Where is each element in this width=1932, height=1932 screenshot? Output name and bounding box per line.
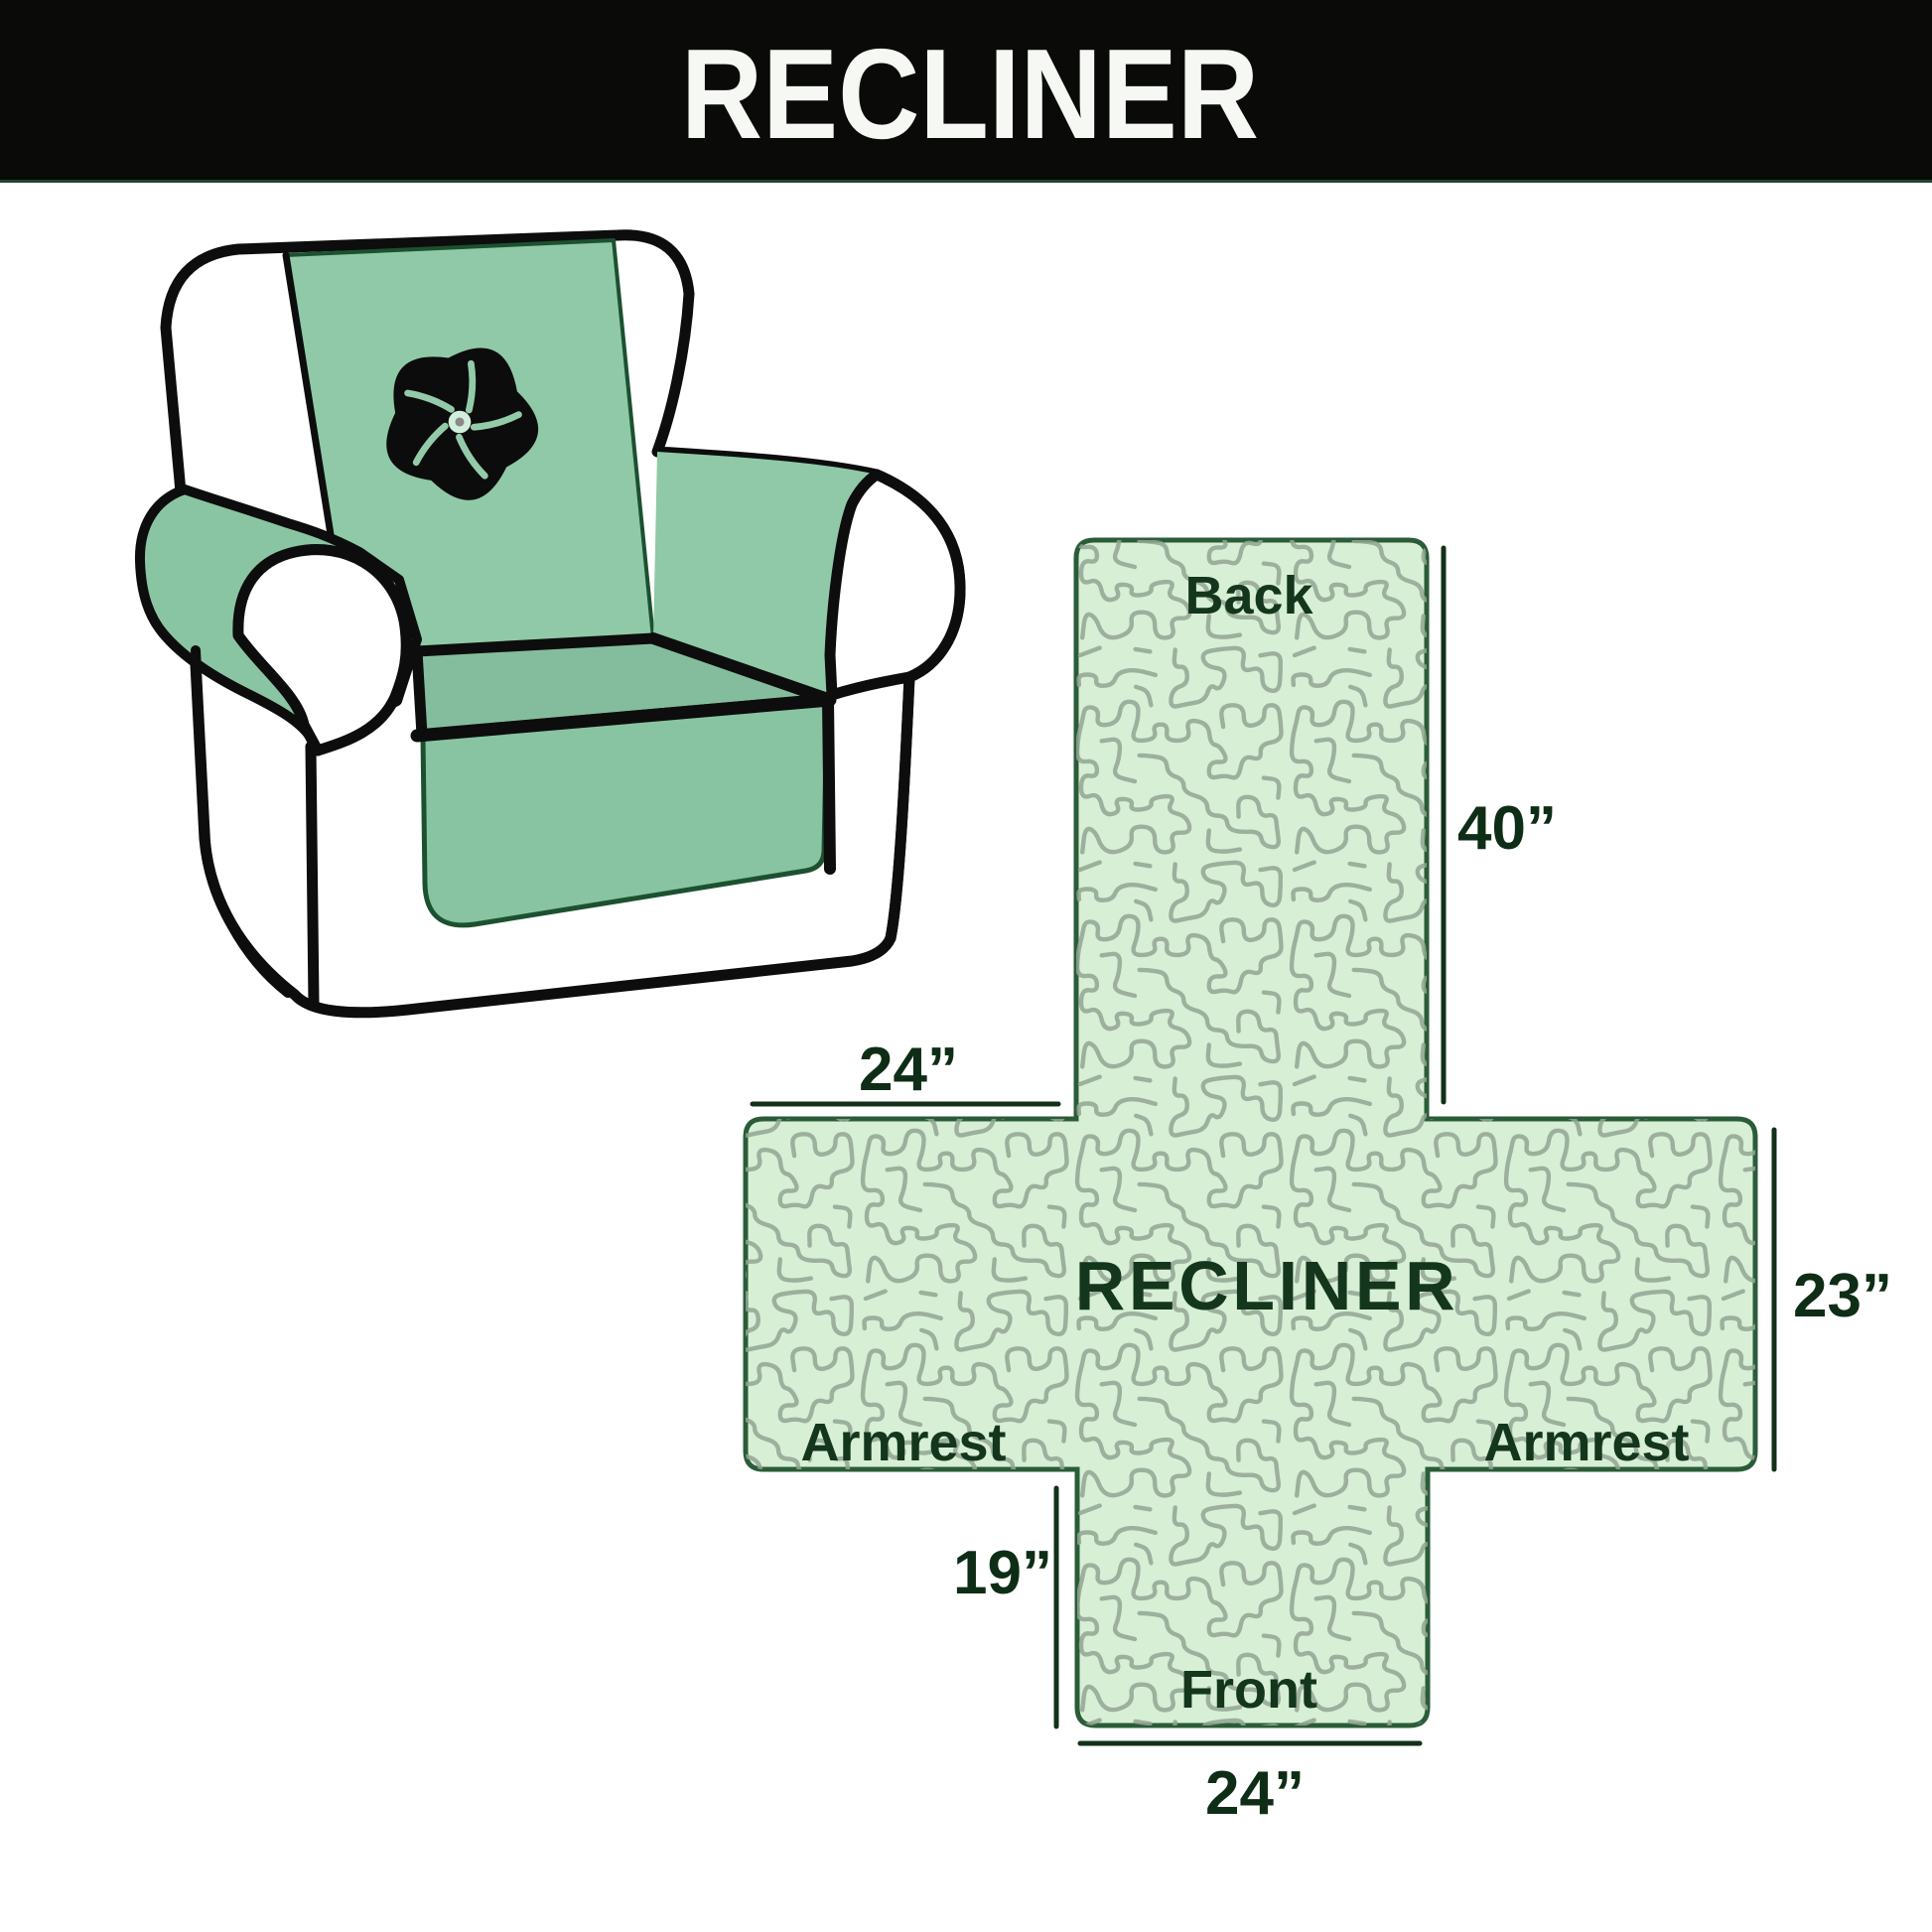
- svg-text:24”: 24”: [859, 1035, 958, 1104]
- svg-text:24”: 24”: [1205, 1759, 1305, 1828]
- svg-text:Armrest: Armrest: [800, 1413, 1006, 1472]
- svg-text:40”: 40”: [1457, 794, 1557, 863]
- svg-text:Front: Front: [1180, 1660, 1317, 1720]
- svg-text:23”: 23”: [1793, 1262, 1892, 1330]
- svg-text:Back: Back: [1184, 566, 1313, 625]
- svg-text:RECLINER: RECLINER: [1075, 1247, 1459, 1324]
- svg-text:Armrest: Armrest: [1483, 1413, 1689, 1472]
- svg-text:19”: 19”: [953, 1539, 1052, 1607]
